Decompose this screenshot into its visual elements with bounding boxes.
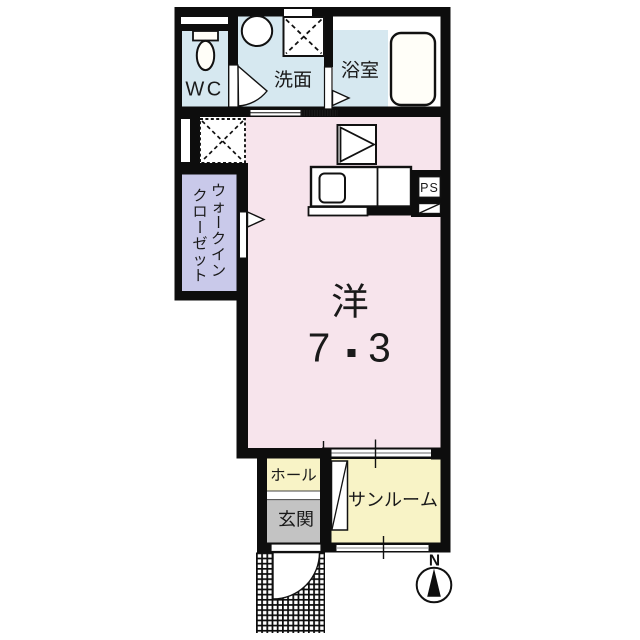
svg-text:7: 7	[308, 325, 331, 371]
svg-text:3: 3	[368, 325, 391, 371]
svg-text:WC: WC	[185, 78, 223, 100]
svg-text:PS: PS	[420, 181, 439, 195]
svg-text:N: N	[429, 553, 440, 570]
